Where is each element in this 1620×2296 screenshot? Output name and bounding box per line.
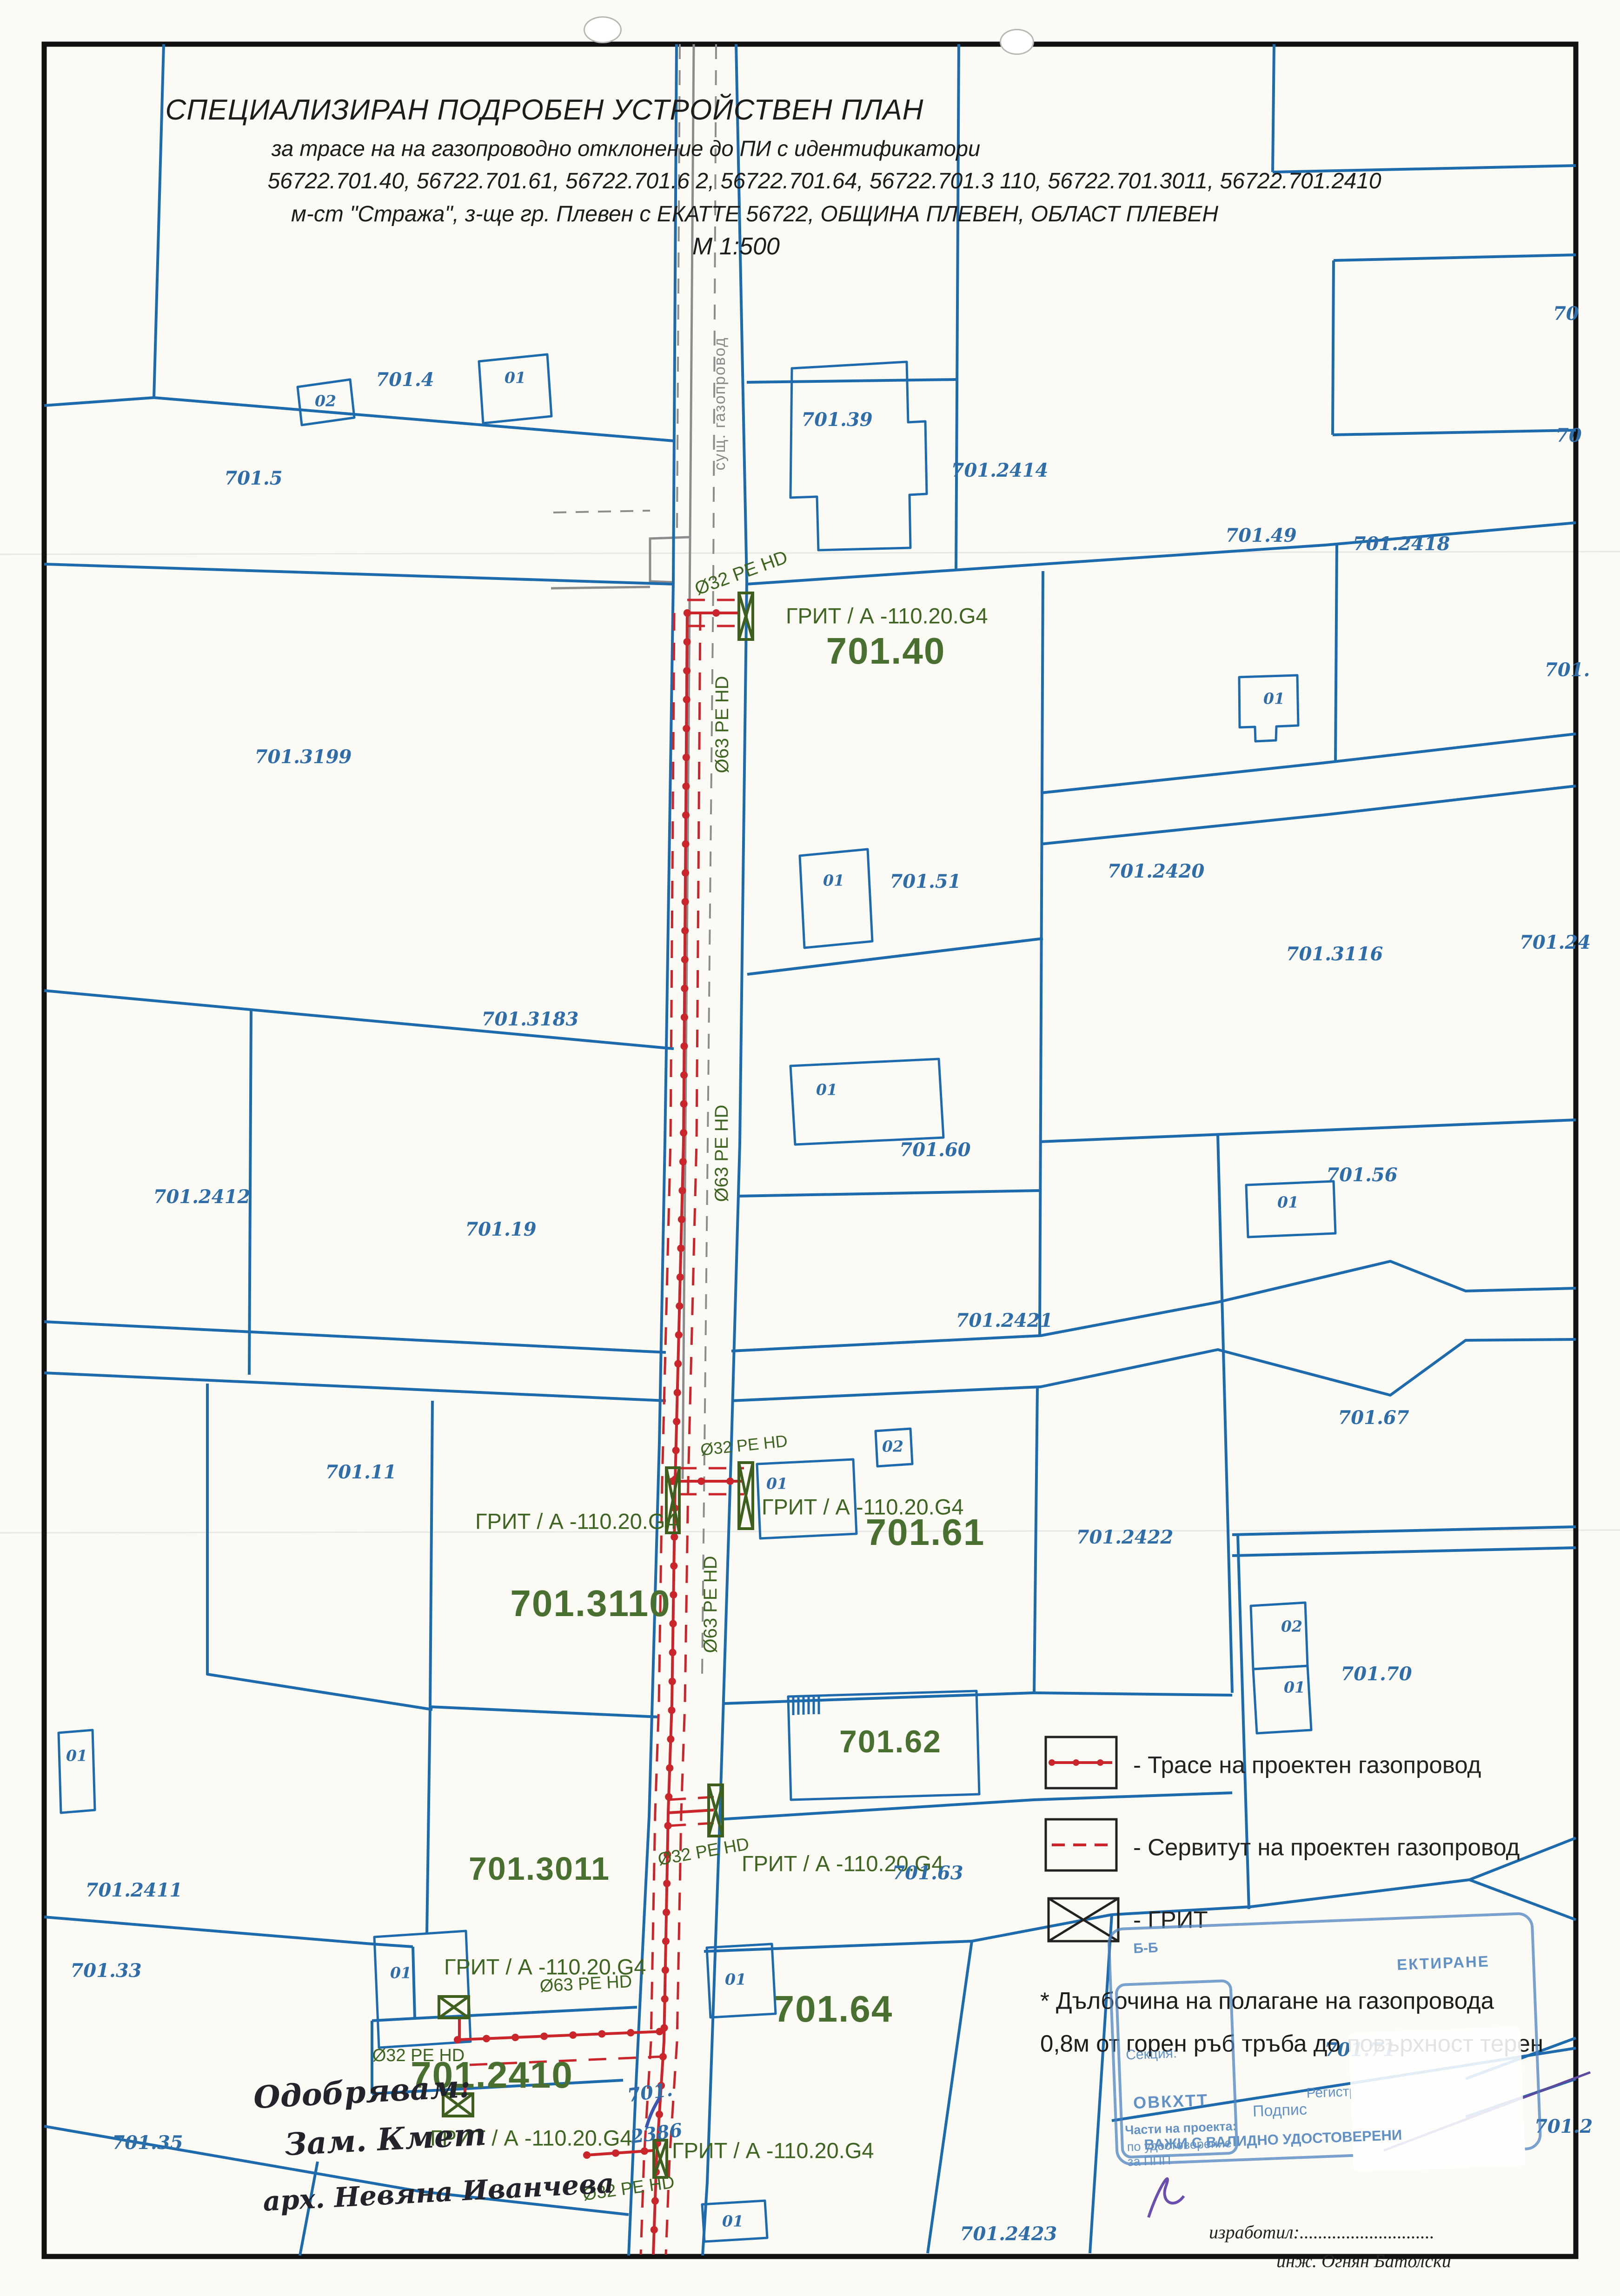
building-label-01: 01: [390, 1965, 412, 1981]
parcel-label-701-63: 701.63: [892, 1864, 963, 1883]
parcel-label-701-2423: 701.2423: [960, 2225, 1057, 2243]
plan-identifiers: 56722.701.40, 56722.701.61, 56722.701.6 …: [267, 170, 1381, 193]
parcel-label-701-2418: 701.2418: [1353, 535, 1450, 553]
parcel-label-edge: 70: [1556, 426, 1582, 445]
approval-line2: Зам. Кмет: [284, 2119, 487, 2160]
building-label-01: 01: [823, 873, 844, 888]
parcel-label-701-56: 701.56: [1326, 1166, 1397, 1185]
legend-symbols: [1046, 1737, 1118, 1941]
parcel-label-701-35: 701.35: [112, 2134, 183, 2152]
parcel-label-701-2422: 701.2422: [1076, 1528, 1174, 1547]
plan-location: м-ст "Стража", з-ще гр. Плевен с ЕКАТТЕ …: [291, 203, 1218, 226]
building-label-01: 01: [1284, 1680, 1305, 1695]
building-label-02: 02: [1281, 1619, 1302, 1634]
stamp-section-label: Секция:: [1126, 2045, 1177, 2063]
parcel-label-701-51: 701.51: [890, 872, 961, 891]
legend-servitude-label: - Сервитут на проектен газопровод: [1133, 1836, 1520, 1859]
existing-gas-lines: [551, 44, 716, 1674]
grit-label: ГРИТ / А -110.20.G4: [475, 1511, 677, 1532]
parcel-label-701-39: 701.39: [801, 411, 872, 429]
stamp-section-value: ОВКХТТ: [1133, 2091, 1208, 2112]
parcel-label-701-67: 701.67: [1338, 1409, 1409, 1427]
parcel-label-701-49: 701.49: [1225, 526, 1296, 545]
building-label-01: 01: [722, 2214, 744, 2229]
parcel-label-701-2414: 701.2414: [951, 461, 1049, 480]
parcel-label-701-62: 701.62: [839, 1726, 942, 1757]
building-label-01: 01: [66, 1748, 87, 1764]
certification-stamp: Б-Б ЕКТИРАНЕ СПОСОБНОСТ Регистрационен №…: [1107, 1907, 1543, 2166]
building-label-02: 02: [315, 393, 336, 409]
pipe-d32-label: Ø32 PE HD: [372, 2047, 465, 2064]
parcel-label-701-3011: 701.3011: [469, 1852, 610, 1885]
parcel-label-701-64: 701.64: [774, 1990, 893, 2028]
building-label-01: 01: [725, 1972, 746, 1987]
parcel-label-701-60: 701.60: [899, 1141, 970, 1159]
building-label-01: 01: [1263, 691, 1285, 706]
pipe-d63-label: Ø63 PE HD: [712, 1105, 731, 1202]
building-label-01: 01: [505, 370, 526, 386]
grit-label: ГРИТ / А -110.20.G4: [762, 1496, 964, 1518]
parcel-label-701-2420: 701.2420: [1108, 862, 1205, 881]
plan-scale: М 1:500: [692, 234, 780, 259]
building-label-01: 01: [1277, 1195, 1299, 1210]
legend-route-label: - Трасе на проектен газопровод: [1133, 1753, 1481, 1777]
parcel-label-701-2421: 701.2421: [956, 1311, 1053, 1330]
parcel-label-701-2411: 701.2411: [86, 1881, 183, 1900]
parcel-label-701-2412: 701.2412: [153, 1188, 251, 1206]
stamp-projecting-text: ЕКТИРАНЕ: [1397, 1953, 1490, 1973]
stamp-parts-value2: за ППП: [1127, 2154, 1171, 2169]
plan-sheet: СПЕЦИАЛИЗИРАН ПОДРОБЕН УСТРОЙСТВЕН ПЛАН …: [0, 0, 1620, 2296]
stamp-signature-label: Подпис: [1252, 2101, 1307, 2121]
plan-title: СПЕЦИАЛИЗИРАН ПОДРОБЕН УСТРОЙСТВЕН ПЛАН: [166, 96, 924, 125]
existing-gas-road-label: сущ. газопровод: [712, 337, 728, 470]
parcel-label-701-11: 701.11: [325, 1463, 396, 1482]
parcel-label-701-4: 701.4: [376, 371, 434, 389]
parcel-label-701-19: 701.19: [465, 1220, 536, 1239]
parcel-label-701-5: 701.5: [224, 469, 282, 488]
parcel-label-701-40: 701.40: [826, 632, 946, 670]
parcel-label-701-3183: 701.3183: [482, 1010, 579, 1029]
building-label-01: 01: [766, 1476, 788, 1491]
parcel-label-edge: 701.2: [1534, 2117, 1593, 2136]
author-name: инж. Огнян Батолски: [1276, 2252, 1451, 2270]
pipe-d63-label: Ø63 PE HD: [701, 1556, 720, 1653]
parcel-label-edge: 70: [1553, 305, 1579, 323]
parcel-label-701-70: 701.70: [1341, 1665, 1412, 1684]
grit-label: ГРИТ / А -110.20.G4: [786, 605, 988, 627]
author-label: изработил:.............................: [1209, 2223, 1434, 2242]
stamp-white-patch: [1348, 2026, 1526, 2172]
parcel-label-edge: 701.24: [1520, 933, 1591, 952]
parcel-label-701-3199: 701.3199: [255, 748, 352, 766]
stamp-code: Б-Б: [1133, 1940, 1158, 1957]
plan-subtitle: за трасе на на газопроводно отклонение д…: [272, 138, 980, 160]
parcel-label-701-3116: 701.3116: [1286, 945, 1383, 964]
building-label-02: 02: [882, 1439, 903, 1454]
parcel-label-701-61: 701.61: [866, 1514, 985, 1551]
parcel-label-701-33: 701.33: [70, 1962, 141, 1980]
pipe-d63-label: Ø63 PE HD: [713, 676, 731, 773]
grit-label: ГРИТ / А -110.20.G4: [672, 2140, 874, 2162]
building-label-01: 01: [816, 1082, 837, 1098]
designed-pipeline: [458, 600, 744, 2255]
parcel-label-701-3110: 701.3110: [510, 1585, 671, 1622]
parcel-label-edge: 701.: [1545, 661, 1590, 679]
pipe-d63-label: Ø63 PE HD: [539, 1973, 632, 1995]
punch-hole: [1000, 29, 1034, 55]
fold-lines: [0, 552, 1620, 1533]
punch-hole: [584, 16, 622, 43]
